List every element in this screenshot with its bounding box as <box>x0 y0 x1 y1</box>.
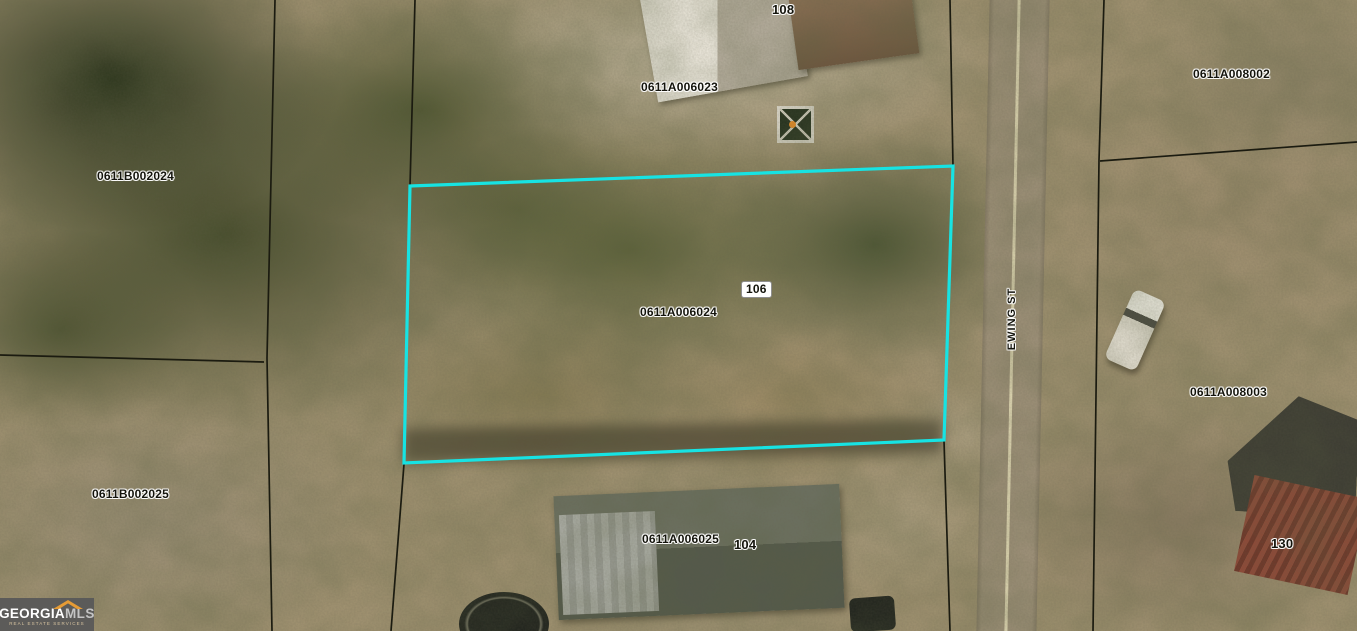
parcel-id-label-0611A006024: 0611A006024 <box>640 305 717 319</box>
house-number-label-108: 108 <box>772 2 794 17</box>
parcel-id-label-0611A008002: 0611A008002 <box>1193 67 1270 81</box>
logo-tagline: REAL ESTATE SERVICES <box>9 622 85 627</box>
parcel-id-label-0611A006025: 0611A006025 <box>642 532 719 546</box>
parcel-id-label-0611A008003: 0611A008003 <box>1190 385 1267 399</box>
parcel-id-label-0611A006023: 0611A006023 <box>641 80 718 94</box>
parcel-id-label-0611B002025: 0611B002025 <box>92 487 169 501</box>
orange-object <box>789 121 796 128</box>
georgia-mls-logo: GEORGIAMLS REAL ESTATE SERVICES <box>0 598 94 631</box>
parcel-id-label-0611B002024: 0611B002024 <box>97 169 174 183</box>
house-roof-104-annex <box>559 511 659 615</box>
house-number-label-104: 104 <box>734 537 756 552</box>
aerial-map-canvas[interactable]: 108 0611A006023 0611B002024 0611A008002 … <box>0 0 1357 631</box>
house-number-label-106: 106 <box>741 281 772 298</box>
parked-car <box>849 595 896 631</box>
garden-frame-structure <box>777 106 814 143</box>
house-number-label-130: 130 <box>1271 536 1293 551</box>
street-name-label: EWING ST <box>1006 273 1018 365</box>
